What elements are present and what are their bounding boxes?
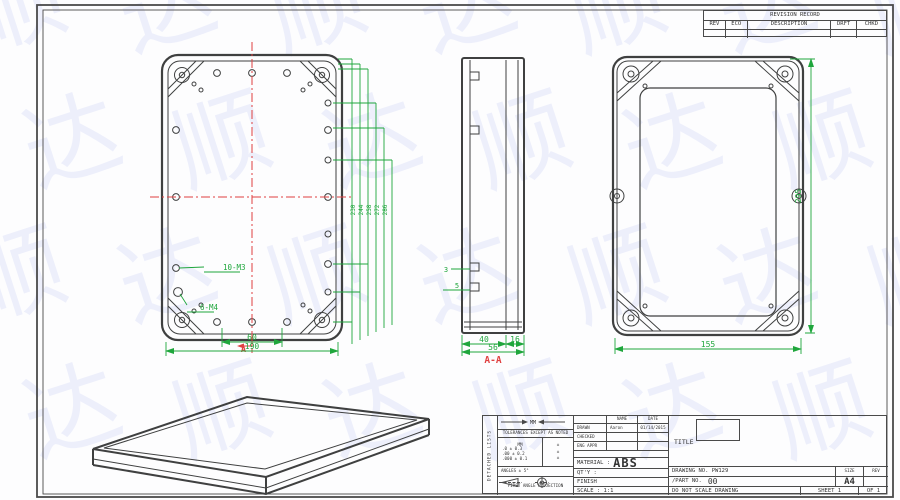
first-angle-projection-icon	[498, 477, 562, 488]
thread-label-6-m4: 6-M4	[200, 303, 219, 312]
drawing-no: DRAWING NO. PW129	[669, 467, 836, 477]
part-no-value: 00	[708, 477, 718, 486]
revision-table-empty-row	[704, 30, 886, 38]
dim-295: 295	[794, 189, 803, 204]
scale-label: SCALE : 1:1	[574, 487, 669, 495]
col-description: DESCRIPTION	[748, 21, 832, 29]
date-header: DATE	[638, 416, 669, 424]
front-view-centerlines	[150, 42, 352, 353]
do-not-scale-note: DO NOT SCALE DRAWING	[669, 487, 801, 495]
col-chkd: CHKD	[857, 21, 886, 29]
isometric-view	[93, 397, 429, 494]
drawn-label: DRAWN	[574, 424, 607, 433]
revision-table: REVISION RECORD REV ECO DESCRIPTION DRFT…	[703, 10, 887, 37]
dim-5: 5	[455, 282, 459, 290]
thread-label-10-m3: 10-M3	[223, 263, 246, 272]
detached-lists-strip: DETACHED LISTS	[483, 416, 497, 495]
side-section-view	[462, 58, 524, 333]
sheet-number: SHEET 1	[801, 487, 859, 495]
svg-text:MM: MM	[530, 420, 536, 426]
pm-2: ±	[557, 449, 560, 456]
dim-3: 3	[444, 266, 448, 274]
drawn-name: Aaron	[607, 424, 638, 433]
dim-155: 155	[701, 340, 716, 349]
checked-label: CHECKED	[574, 433, 607, 442]
side-view-dim-text: 3 5 40 16 56	[444, 266, 520, 352]
back-view	[610, 57, 806, 335]
surface-finish-symbol: MM	[498, 416, 568, 428]
qty-label: QT'Y :	[574, 469, 669, 478]
title-label: TITLE	[674, 438, 694, 446]
part-no-label: /PART NO.	[669, 478, 702, 484]
name-header: NAME	[607, 416, 638, 424]
col-eco: ECO	[726, 21, 748, 29]
chain-dim-2: 244	[358, 204, 365, 215]
col-drft: DRFT	[831, 21, 856, 29]
size-value: A4	[836, 477, 864, 487]
sheet-of: OF 1	[859, 487, 888, 495]
dim-16: 16	[510, 335, 520, 344]
chain-dim-4: 272	[374, 204, 381, 215]
finish-label: FINISH	[574, 478, 669, 487]
material-value: ABS	[613, 458, 638, 469]
drawn-date: 01/14/2015	[638, 424, 669, 433]
chain-dim-5: 286	[382, 204, 389, 215]
logo-box	[696, 419, 740, 441]
title-block: DETACHED LISTS MM TOLERANCES EXCEPT AS N…	[482, 415, 887, 494]
dim-60: 60	[247, 333, 257, 342]
section-label-a-a: A-A	[484, 355, 501, 366]
tolerance-note: TOLERANCES EXCEPT AS NOTED	[498, 430, 574, 438]
size-label: SIZE	[836, 467, 864, 477]
chain-dim-1: 230	[350, 204, 357, 215]
chain-dim-3: 258	[366, 204, 373, 215]
drawing-sheet: 顺达顺达顺达顺达顺达顺达顺达顺达顺达顺达顺达顺达顺达顺达	[0, 0, 900, 500]
pm-3: ±	[557, 455, 560, 462]
revision-table-title: REVISION RECORD	[704, 11, 886, 21]
rev-label: REV	[864, 467, 888, 477]
tolerance-row-3: .000 ± 0.1	[498, 457, 542, 462]
pm-1: ±	[557, 442, 560, 449]
dim-190: 190	[245, 342, 260, 351]
front-view-dim-text: 60 190 10-M3 6-M4 230 244 258 272 286	[200, 204, 389, 351]
dim-56: 56	[488, 343, 498, 352]
revision-table-header: REV ECO DESCRIPTION DRFT CHKD	[704, 21, 886, 30]
eng-appr-label: ENG APPR	[574, 442, 607, 451]
material-label: MATERIAL :	[574, 460, 610, 466]
angles-tolerance: ANGLES ± 5°	[498, 467, 574, 477]
col-rev: REV	[704, 21, 726, 29]
